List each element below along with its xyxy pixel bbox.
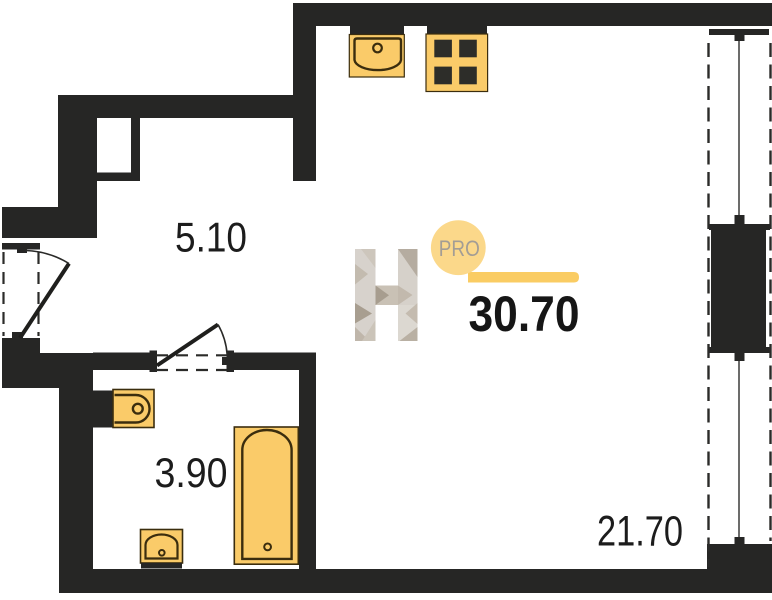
svg-text:PRO: PRO <box>439 236 480 261</box>
svg-text:30.70: 30.70 <box>469 286 580 342</box>
svg-text:5.10: 5.10 <box>175 214 247 261</box>
svg-text:21.70: 21.70 <box>597 509 683 556</box>
svg-text:3.90: 3.90 <box>155 449 228 496</box>
